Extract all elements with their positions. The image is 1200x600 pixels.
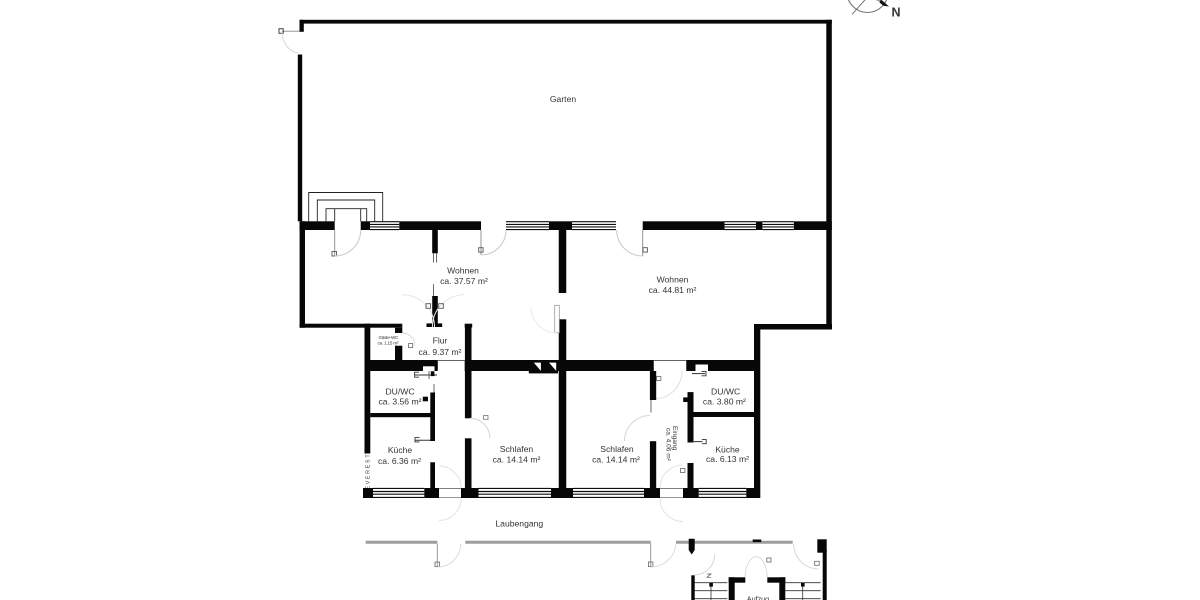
svg-text:DU/WC: DU/WC bbox=[385, 387, 414, 397]
svg-text:ca. 4.06 m²: ca. 4.06 m² bbox=[665, 428, 672, 462]
svg-text:ca. 44.81 m²: ca. 44.81 m² bbox=[649, 285, 697, 295]
svg-text:ca. 37.57 m²: ca. 37.57 m² bbox=[440, 276, 488, 286]
svg-text:ca. 14.14 m²: ca. 14.14 m² bbox=[592, 455, 640, 465]
svg-text:Küche: Küche bbox=[715, 444, 740, 454]
svg-text:ca. 6.13 m²: ca. 6.13 m² bbox=[706, 454, 749, 464]
svg-text:ca. 1.15 m²: ca. 1.15 m² bbox=[378, 341, 399, 346]
svg-text:Küche: Küche bbox=[388, 445, 413, 455]
svg-text:ca. 14.14 m²: ca. 14.14 m² bbox=[493, 455, 541, 465]
svg-text:Gäste-WC: Gäste-WC bbox=[379, 335, 400, 340]
svg-text:ca. 9.37 m²: ca. 9.37 m² bbox=[419, 347, 462, 357]
svg-text:ca. 3.80 m²: ca. 3.80 m² bbox=[703, 396, 746, 406]
svg-text:Garten: Garten bbox=[550, 94, 576, 104]
svg-text:ca. 6.36 m²: ca. 6.36 m² bbox=[378, 456, 421, 466]
svg-text:N: N bbox=[892, 6, 901, 20]
svg-text:Schlafen: Schlafen bbox=[600, 444, 634, 454]
svg-text:Schlafen: Schlafen bbox=[500, 444, 534, 454]
svg-text:Laubengang: Laubengang bbox=[495, 518, 543, 528]
svg-text:Wohnen: Wohnen bbox=[657, 275, 689, 285]
svg-text:DU/WC: DU/WC bbox=[711, 387, 740, 397]
svg-text:Flur: Flur bbox=[433, 336, 448, 346]
svg-text:Wohnen: Wohnen bbox=[447, 266, 479, 276]
svg-text:Aufzug: Aufzug bbox=[747, 595, 769, 600]
svg-text:ca. 3.56 m²: ca. 3.56 m² bbox=[379, 396, 422, 406]
